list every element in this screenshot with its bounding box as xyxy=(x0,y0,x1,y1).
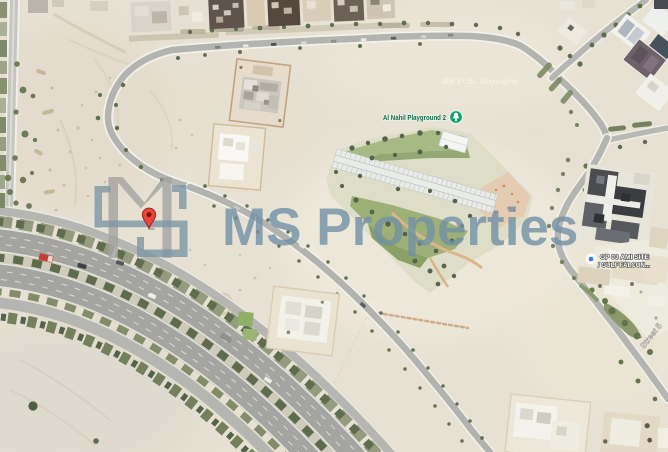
svg-text:49 P.S. Google: 49 P.S. Google xyxy=(442,77,519,86)
svg-text:Al Nahil Playground 2: Al Nahil Playground 2 xyxy=(383,115,446,122)
svg-text:MS Properties: MS Properties xyxy=(222,198,578,257)
svg-text:/ GULF FALCON...: / GULF FALCON... xyxy=(598,262,650,269)
svg-text:GP 03 AMI SITE: GP 03 AMI SITE xyxy=(600,254,650,261)
